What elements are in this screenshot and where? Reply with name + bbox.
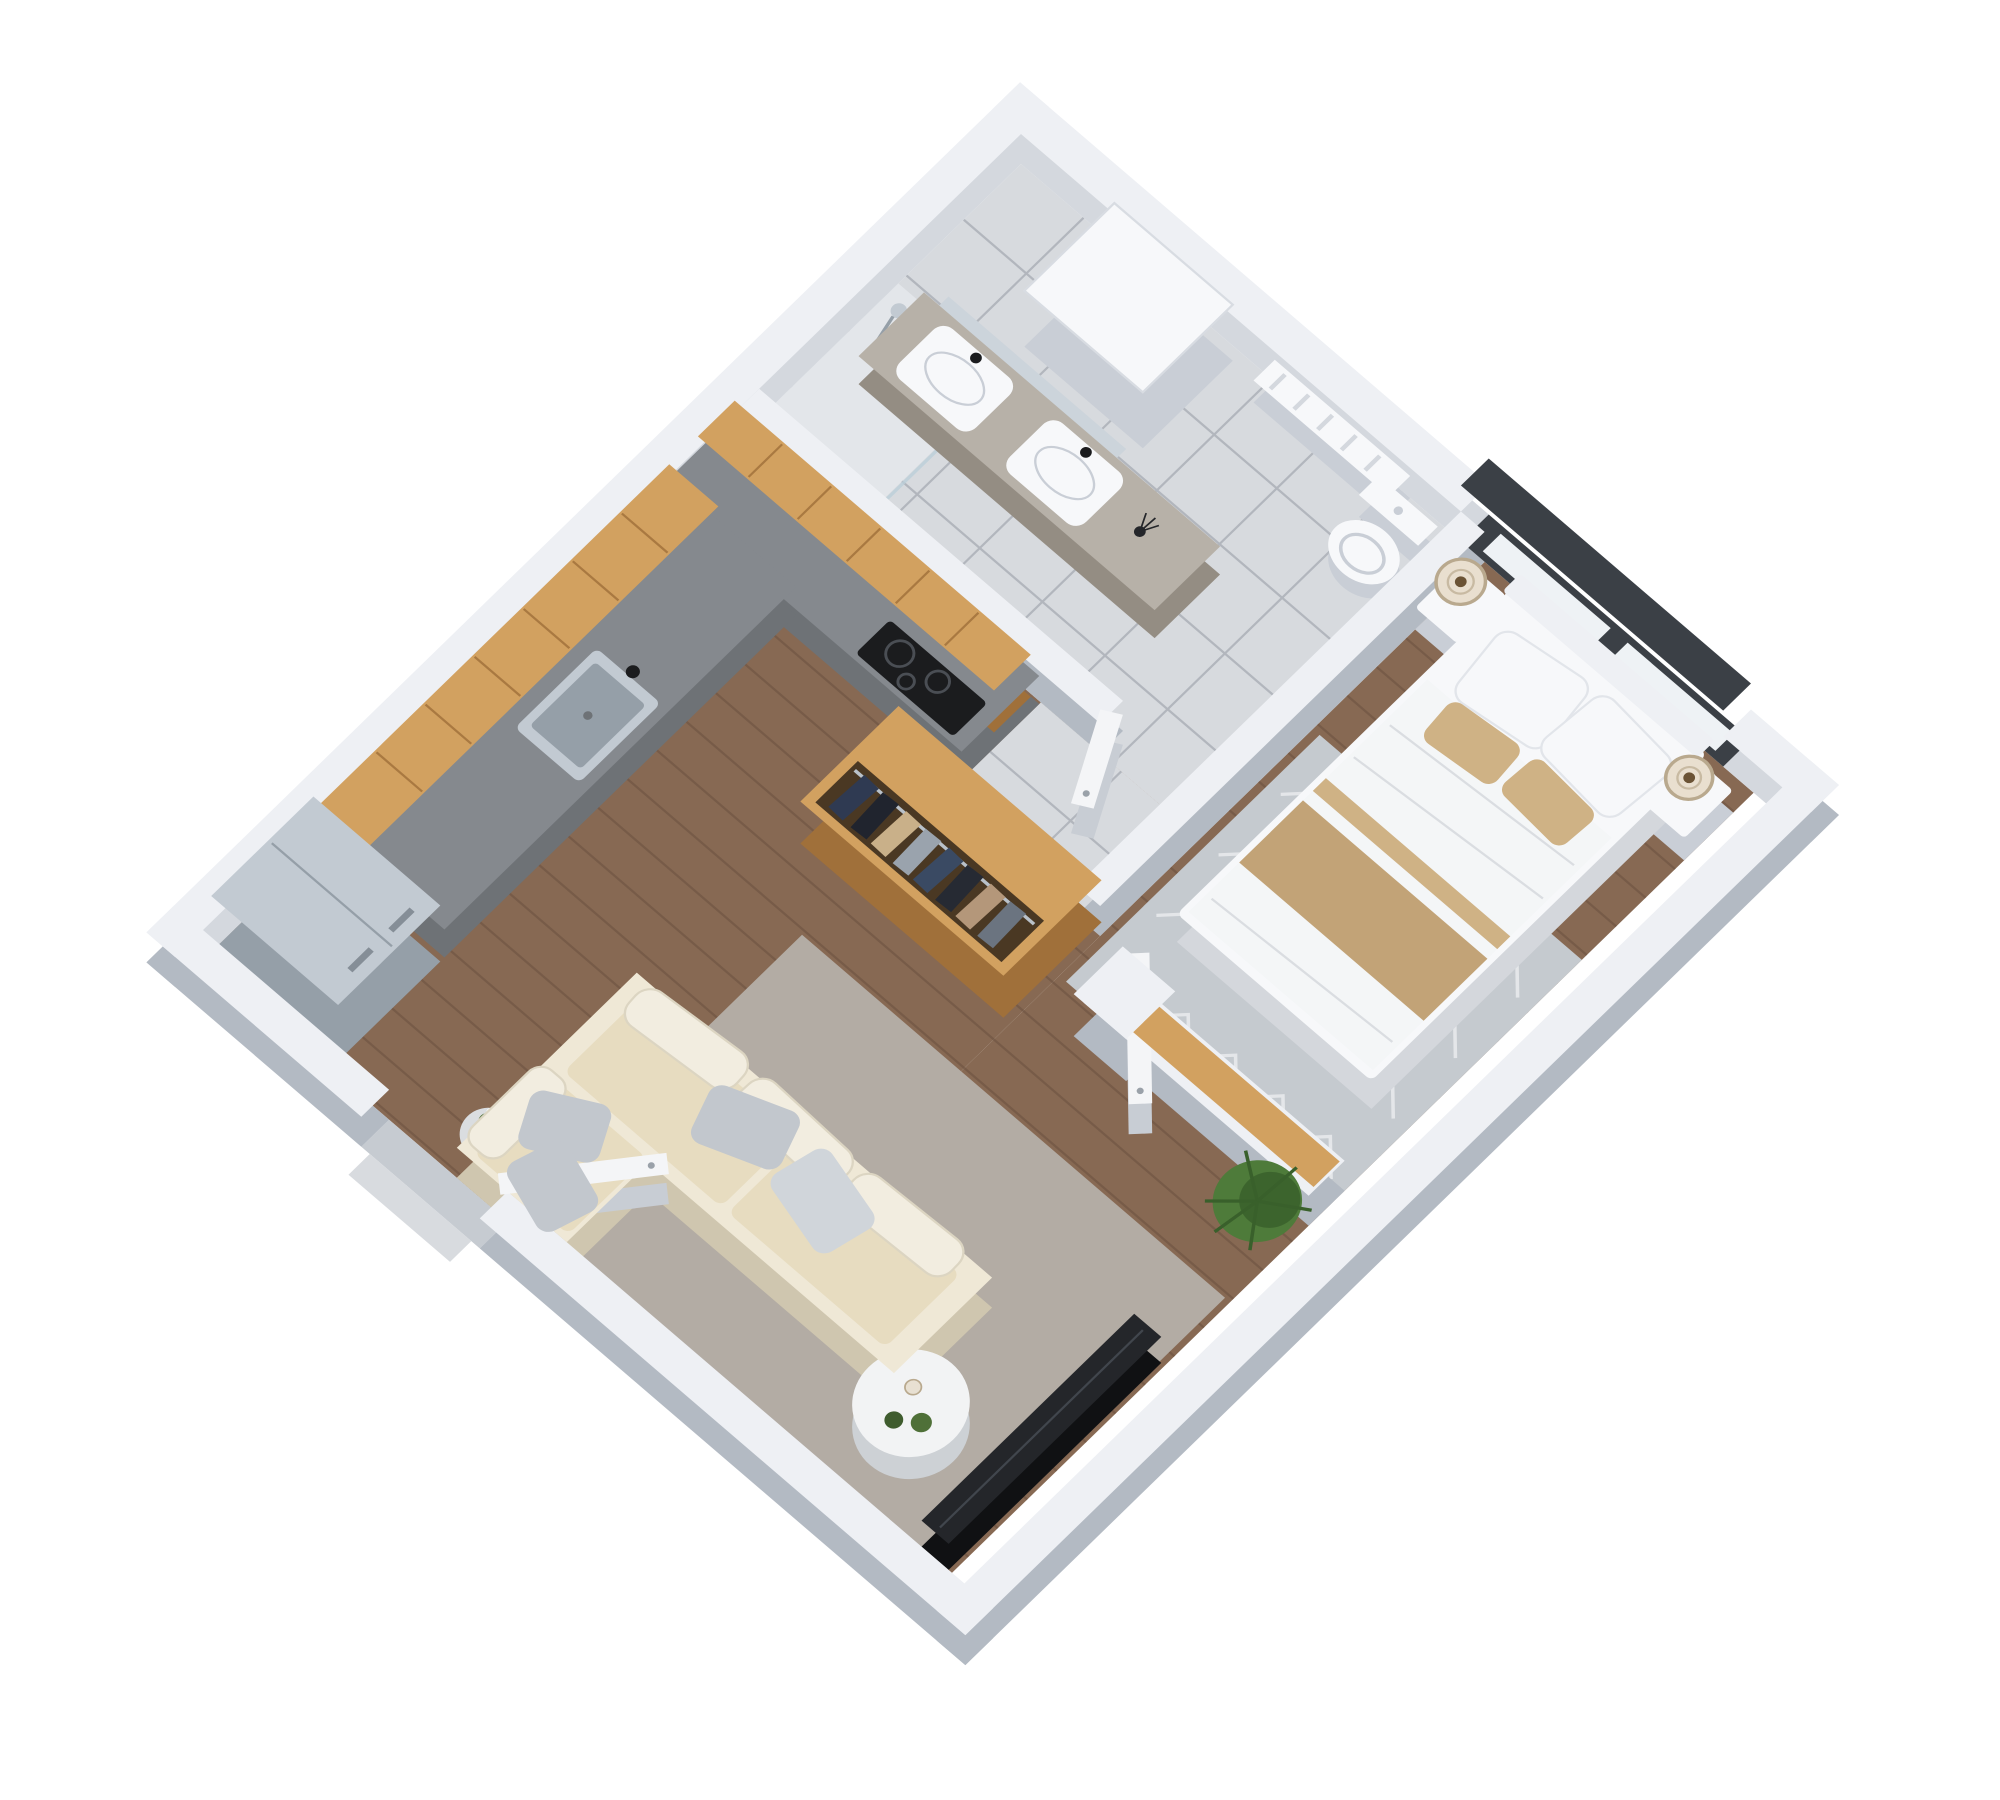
floor-plan-canvas: [0, 0, 2000, 1800]
floor-plan-stage: [0, 0, 2000, 1800]
